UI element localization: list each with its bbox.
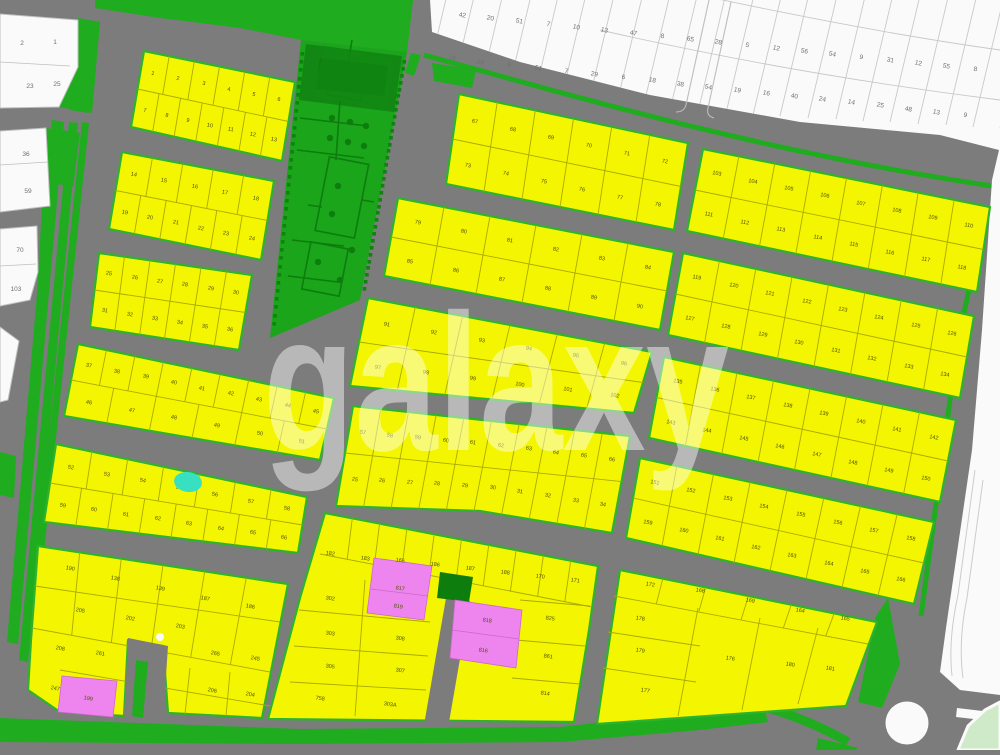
svg-text:31: 31 <box>101 307 108 314</box>
svg-text:84: 84 <box>644 264 651 271</box>
svg-text:24: 24 <box>248 235 255 242</box>
svg-text:817: 817 <box>395 585 405 592</box>
svg-text:34: 34 <box>176 319 183 326</box>
svg-text:305: 305 <box>325 663 335 670</box>
svg-text:37: 37 <box>85 362 92 369</box>
svg-text:36: 36 <box>226 326 233 333</box>
svg-text:25: 25 <box>53 81 61 88</box>
svg-text:816: 816 <box>478 647 488 654</box>
svg-text:25: 25 <box>105 270 112 277</box>
svg-text:81: 81 <box>506 237 513 244</box>
svg-text:103: 103 <box>11 286 22 293</box>
svg-text:40: 40 <box>170 379 177 386</box>
svg-text:galaxy: galaxy <box>263 274 729 492</box>
svg-text:75: 75 <box>540 178 547 185</box>
svg-text:818: 818 <box>482 617 492 624</box>
svg-text:46: 46 <box>85 399 92 406</box>
svg-text:23: 23 <box>26 83 34 90</box>
svg-text:66: 66 <box>280 534 287 541</box>
svg-text:69: 69 <box>547 134 554 141</box>
svg-text:12: 12 <box>249 131 256 138</box>
svg-text:36: 36 <box>22 151 30 158</box>
svg-text:74: 74 <box>502 170 509 177</box>
svg-text:814: 814 <box>540 690 550 697</box>
svg-text:165: 165 <box>395 557 405 564</box>
svg-text:183: 183 <box>360 555 370 562</box>
svg-text:17: 17 <box>221 189 228 196</box>
svg-text:67: 67 <box>471 118 478 125</box>
svg-text:35: 35 <box>201 323 208 330</box>
svg-text:72: 72 <box>661 158 668 165</box>
svg-text:53: 53 <box>103 471 110 478</box>
svg-text:85: 85 <box>406 258 413 265</box>
svg-text:302: 302 <box>325 595 335 602</box>
svg-text:303: 303 <box>325 630 335 637</box>
svg-text:61: 61 <box>122 511 129 518</box>
svg-text:23: 23 <box>222 230 229 237</box>
svg-text:52: 52 <box>67 464 74 471</box>
svg-text:77: 77 <box>616 194 623 201</box>
svg-text:188: 188 <box>500 569 510 576</box>
svg-text:186: 186 <box>430 561 440 568</box>
svg-text:64: 64 <box>217 525 224 532</box>
svg-text:70: 70 <box>585 142 592 149</box>
svg-text:22: 22 <box>197 225 204 232</box>
svg-text:62: 62 <box>154 515 161 522</box>
svg-text:33: 33 <box>572 497 579 504</box>
svg-text:41: 41 <box>198 385 205 392</box>
svg-text:47: 47 <box>128 407 135 414</box>
svg-text:49: 49 <box>213 422 220 429</box>
svg-text:19: 19 <box>121 209 128 216</box>
svg-text:71: 71 <box>623 150 630 157</box>
svg-text:1: 1 <box>53 39 57 46</box>
svg-text:76: 76 <box>578 186 585 193</box>
svg-text:170: 170 <box>535 573 545 580</box>
svg-text:34: 34 <box>599 501 606 508</box>
svg-text:80: 80 <box>460 228 467 235</box>
svg-text:29: 29 <box>207 285 214 292</box>
svg-text:26: 26 <box>131 274 138 281</box>
svg-text:187: 187 <box>465 565 475 572</box>
svg-text:28: 28 <box>181 281 188 288</box>
svg-text:171: 171 <box>570 577 580 584</box>
svg-text:308: 308 <box>395 635 405 642</box>
svg-text:56: 56 <box>211 491 218 498</box>
svg-text:15: 15 <box>160 177 167 184</box>
svg-text:32: 32 <box>544 492 551 499</box>
svg-text:16: 16 <box>191 183 198 190</box>
svg-text:42: 42 <box>227 390 234 397</box>
svg-text:30: 30 <box>232 289 239 296</box>
svg-text:58: 58 <box>283 505 290 512</box>
svg-text:182: 182 <box>325 550 335 557</box>
svg-text:65: 65 <box>249 529 256 536</box>
svg-text:861: 861 <box>543 653 553 660</box>
svg-text:43: 43 <box>255 396 262 403</box>
svg-text:63: 63 <box>185 520 192 527</box>
svg-text:32: 32 <box>126 311 133 318</box>
svg-text:21: 21 <box>172 219 179 226</box>
svg-text:758: 758 <box>315 695 325 702</box>
svg-text:70: 70 <box>16 247 24 254</box>
svg-text:11: 11 <box>227 126 234 133</box>
svg-text:825: 825 <box>545 615 555 622</box>
svg-text:79: 79 <box>414 219 421 226</box>
svg-text:59: 59 <box>59 502 66 509</box>
svg-text:68: 68 <box>509 126 516 133</box>
svg-text:2: 2 <box>20 40 24 47</box>
svg-text:82: 82 <box>552 246 559 253</box>
svg-text:48: 48 <box>170 414 177 421</box>
svg-text:57: 57 <box>247 498 254 505</box>
svg-text:18: 18 <box>252 195 259 202</box>
svg-text:14: 14 <box>130 171 137 178</box>
svg-text:78: 78 <box>654 201 661 208</box>
svg-text:83: 83 <box>598 255 605 262</box>
svg-text:38: 38 <box>113 368 120 375</box>
svg-text:39: 39 <box>142 373 149 380</box>
svg-text:819: 819 <box>393 603 403 610</box>
svg-text:20: 20 <box>146 214 153 221</box>
svg-text:27: 27 <box>156 278 163 285</box>
svg-text:33: 33 <box>151 315 158 322</box>
svg-text:60: 60 <box>90 506 97 513</box>
svg-text:13: 13 <box>270 136 277 143</box>
svg-text:73: 73 <box>464 162 471 169</box>
svg-text:307: 307 <box>395 667 405 674</box>
svg-text:10: 10 <box>206 122 213 129</box>
svg-text:54: 54 <box>139 477 146 484</box>
svg-text:59: 59 <box>24 188 32 195</box>
